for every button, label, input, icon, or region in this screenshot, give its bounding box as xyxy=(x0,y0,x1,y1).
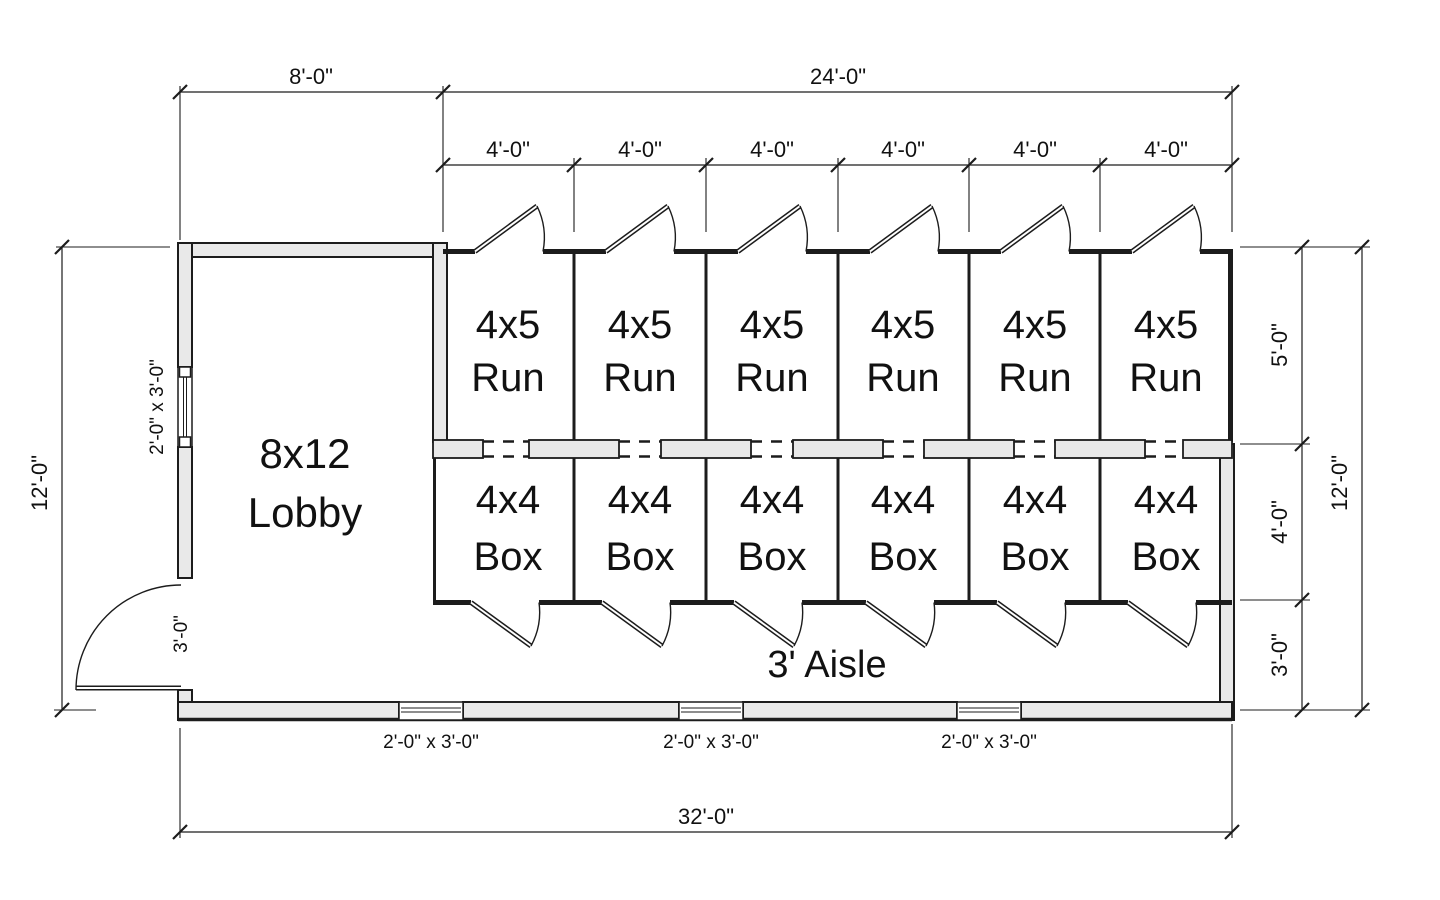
pass-door-opening-1 xyxy=(483,442,529,457)
run-size-label-5: 4x5 xyxy=(1003,303,1068,347)
bottom-wall-seg-4 xyxy=(1021,702,1232,720)
run-fences xyxy=(433,249,1232,603)
pass-door-opening-3 xyxy=(751,442,793,457)
run-size-label-1: 4x5 xyxy=(476,303,541,347)
dim-aisle-depth: 3'-0" xyxy=(1267,633,1292,677)
pass-door-opening-2 xyxy=(619,442,661,457)
partition-panel-2 xyxy=(661,440,751,458)
dim-cell-width-5: 4'-0" xyxy=(1013,137,1057,162)
box-gate-2 xyxy=(602,603,671,647)
dim-cell-width-4: 4'-0" xyxy=(881,137,925,162)
box-size-label-6: 4x4 xyxy=(1134,478,1199,522)
box-name-label-1: Box xyxy=(474,535,543,579)
partition-panel-1 xyxy=(529,440,619,458)
box-size-label-3: 4x4 xyxy=(740,478,805,522)
right-wall-lower xyxy=(1220,444,1234,720)
run-name-label-3: Run xyxy=(735,356,808,400)
kennel-floor-plan: 8'-0" 24'-0" 4'-0" 4'-0" 4'-0" 4'-0" 4'-… xyxy=(0,0,1440,900)
pass-door-opening-5 xyxy=(1014,442,1055,457)
partition-panel-5 xyxy=(1055,440,1145,458)
dim-overall-height-right: 12'-0" xyxy=(1327,455,1352,511)
lobby-top-wall xyxy=(178,243,447,257)
bottom-window-size-label-3: 2'-0" x 3'-0" xyxy=(941,732,1037,753)
run-size-label-3: 4x5 xyxy=(740,303,805,347)
dim-cell-width-2: 4'-0" xyxy=(618,137,662,162)
box-size-label-1: 4x4 xyxy=(476,478,541,522)
box-gate-4 xyxy=(866,603,935,647)
box-size-label-2: 4x4 xyxy=(608,478,673,522)
partition-right-stub xyxy=(1183,440,1232,458)
run-box-partition xyxy=(433,440,1232,458)
extension-lines-top xyxy=(180,86,1232,240)
run-name-label-4: Run xyxy=(866,356,939,400)
pass-door-opening-6 xyxy=(1145,442,1183,457)
run-name-label-5: Run xyxy=(998,356,1071,400)
room-labels: 8x12 Lobby 4x5 Run 4x5 Run 4x5 Run 4x5 R… xyxy=(248,303,1203,686)
dim-box-depth: 4'-0" xyxy=(1267,500,1292,544)
run-gate-2 xyxy=(606,206,675,252)
left-wall-middle xyxy=(178,447,192,578)
box-gate-1 xyxy=(471,603,540,647)
box-gate-5 xyxy=(997,603,1066,647)
pass-door-opening-4 xyxy=(883,442,924,457)
dim-run-depth: 5'-0" xyxy=(1267,323,1292,367)
dim-kennel-width: 24'-0" xyxy=(810,64,866,89)
box-name-label-3: Box xyxy=(738,535,807,579)
lobby-name-label: Lobby xyxy=(248,489,362,536)
dimension-lines xyxy=(54,85,1370,839)
left-wall-window xyxy=(178,367,192,447)
bottom-window-1 xyxy=(399,702,463,720)
box-size-label-5: 4x4 xyxy=(1003,478,1068,522)
run-gate-6 xyxy=(1132,206,1201,252)
run-gate-5 xyxy=(1001,206,1070,252)
aisle-label: 3' Aisle xyxy=(767,644,886,686)
box-gate-3 xyxy=(734,603,803,647)
extension-lines-left xyxy=(54,247,170,710)
dim-cell-width-3: 4'-0" xyxy=(750,137,794,162)
partition-left-stub xyxy=(433,440,483,458)
bottom-wall-seg-2 xyxy=(463,702,679,720)
box-name-label-5: Box xyxy=(1001,535,1070,579)
run-size-label-2: 4x5 xyxy=(608,303,673,347)
door-swing-arc xyxy=(76,585,181,690)
left-wall-upper xyxy=(178,243,192,367)
run-size-label-4: 4x5 xyxy=(871,303,936,347)
dim-overall-height-left: 12'-0" xyxy=(27,455,52,511)
entry-door xyxy=(76,585,181,690)
box-name-label-2: Box xyxy=(606,535,675,579)
bottom-wall-seg-1 xyxy=(178,702,399,720)
lobby-size-label: 8x12 xyxy=(259,430,350,477)
run-gate-1 xyxy=(475,206,544,252)
partition-panel-3 xyxy=(793,440,883,458)
left-window-size-label: 2'-0" x 3'-0" xyxy=(147,359,168,455)
floor-plan-drawing: 8'-0" 24'-0" 4'-0" 4'-0" 4'-0" 4'-0" 4'-… xyxy=(0,0,1440,900)
lobby-right-wall xyxy=(433,243,447,442)
run-dividers xyxy=(574,254,1100,440)
run-gate-3 xyxy=(738,206,807,252)
bottom-window-2 xyxy=(679,702,743,720)
door-size-label: 3'-0" xyxy=(171,615,192,653)
run-gate-4 xyxy=(870,206,939,252)
run-name-label-2: Run xyxy=(603,356,676,400)
bottom-window-3 xyxy=(957,702,1021,720)
dim-cell-width-6: 4'-0" xyxy=(1144,137,1188,162)
box-name-label-4: Box xyxy=(869,535,938,579)
dim-overall-width-bottom: 32'-0" xyxy=(678,804,734,829)
run-size-label-6: 4x5 xyxy=(1134,303,1199,347)
run-name-label-1: Run xyxy=(471,356,544,400)
run-name-label-6: Run xyxy=(1129,356,1202,400)
box-gate-6 xyxy=(1128,603,1197,647)
bottom-window-size-label-2: 2'-0" x 3'-0" xyxy=(663,732,759,753)
dim-cell-width-1: 4'-0" xyxy=(486,137,530,162)
partition-panel-4 xyxy=(924,440,1014,458)
dim-lobby-width: 8'-0" xyxy=(289,64,333,89)
box-size-label-4: 4x4 xyxy=(871,478,936,522)
box-gates xyxy=(471,603,1197,647)
bottom-wall-seg-3 xyxy=(743,702,957,720)
bottom-window-size-label-1: 2'-0" x 3'-0" xyxy=(383,732,479,753)
box-name-label-6: Box xyxy=(1132,535,1201,579)
